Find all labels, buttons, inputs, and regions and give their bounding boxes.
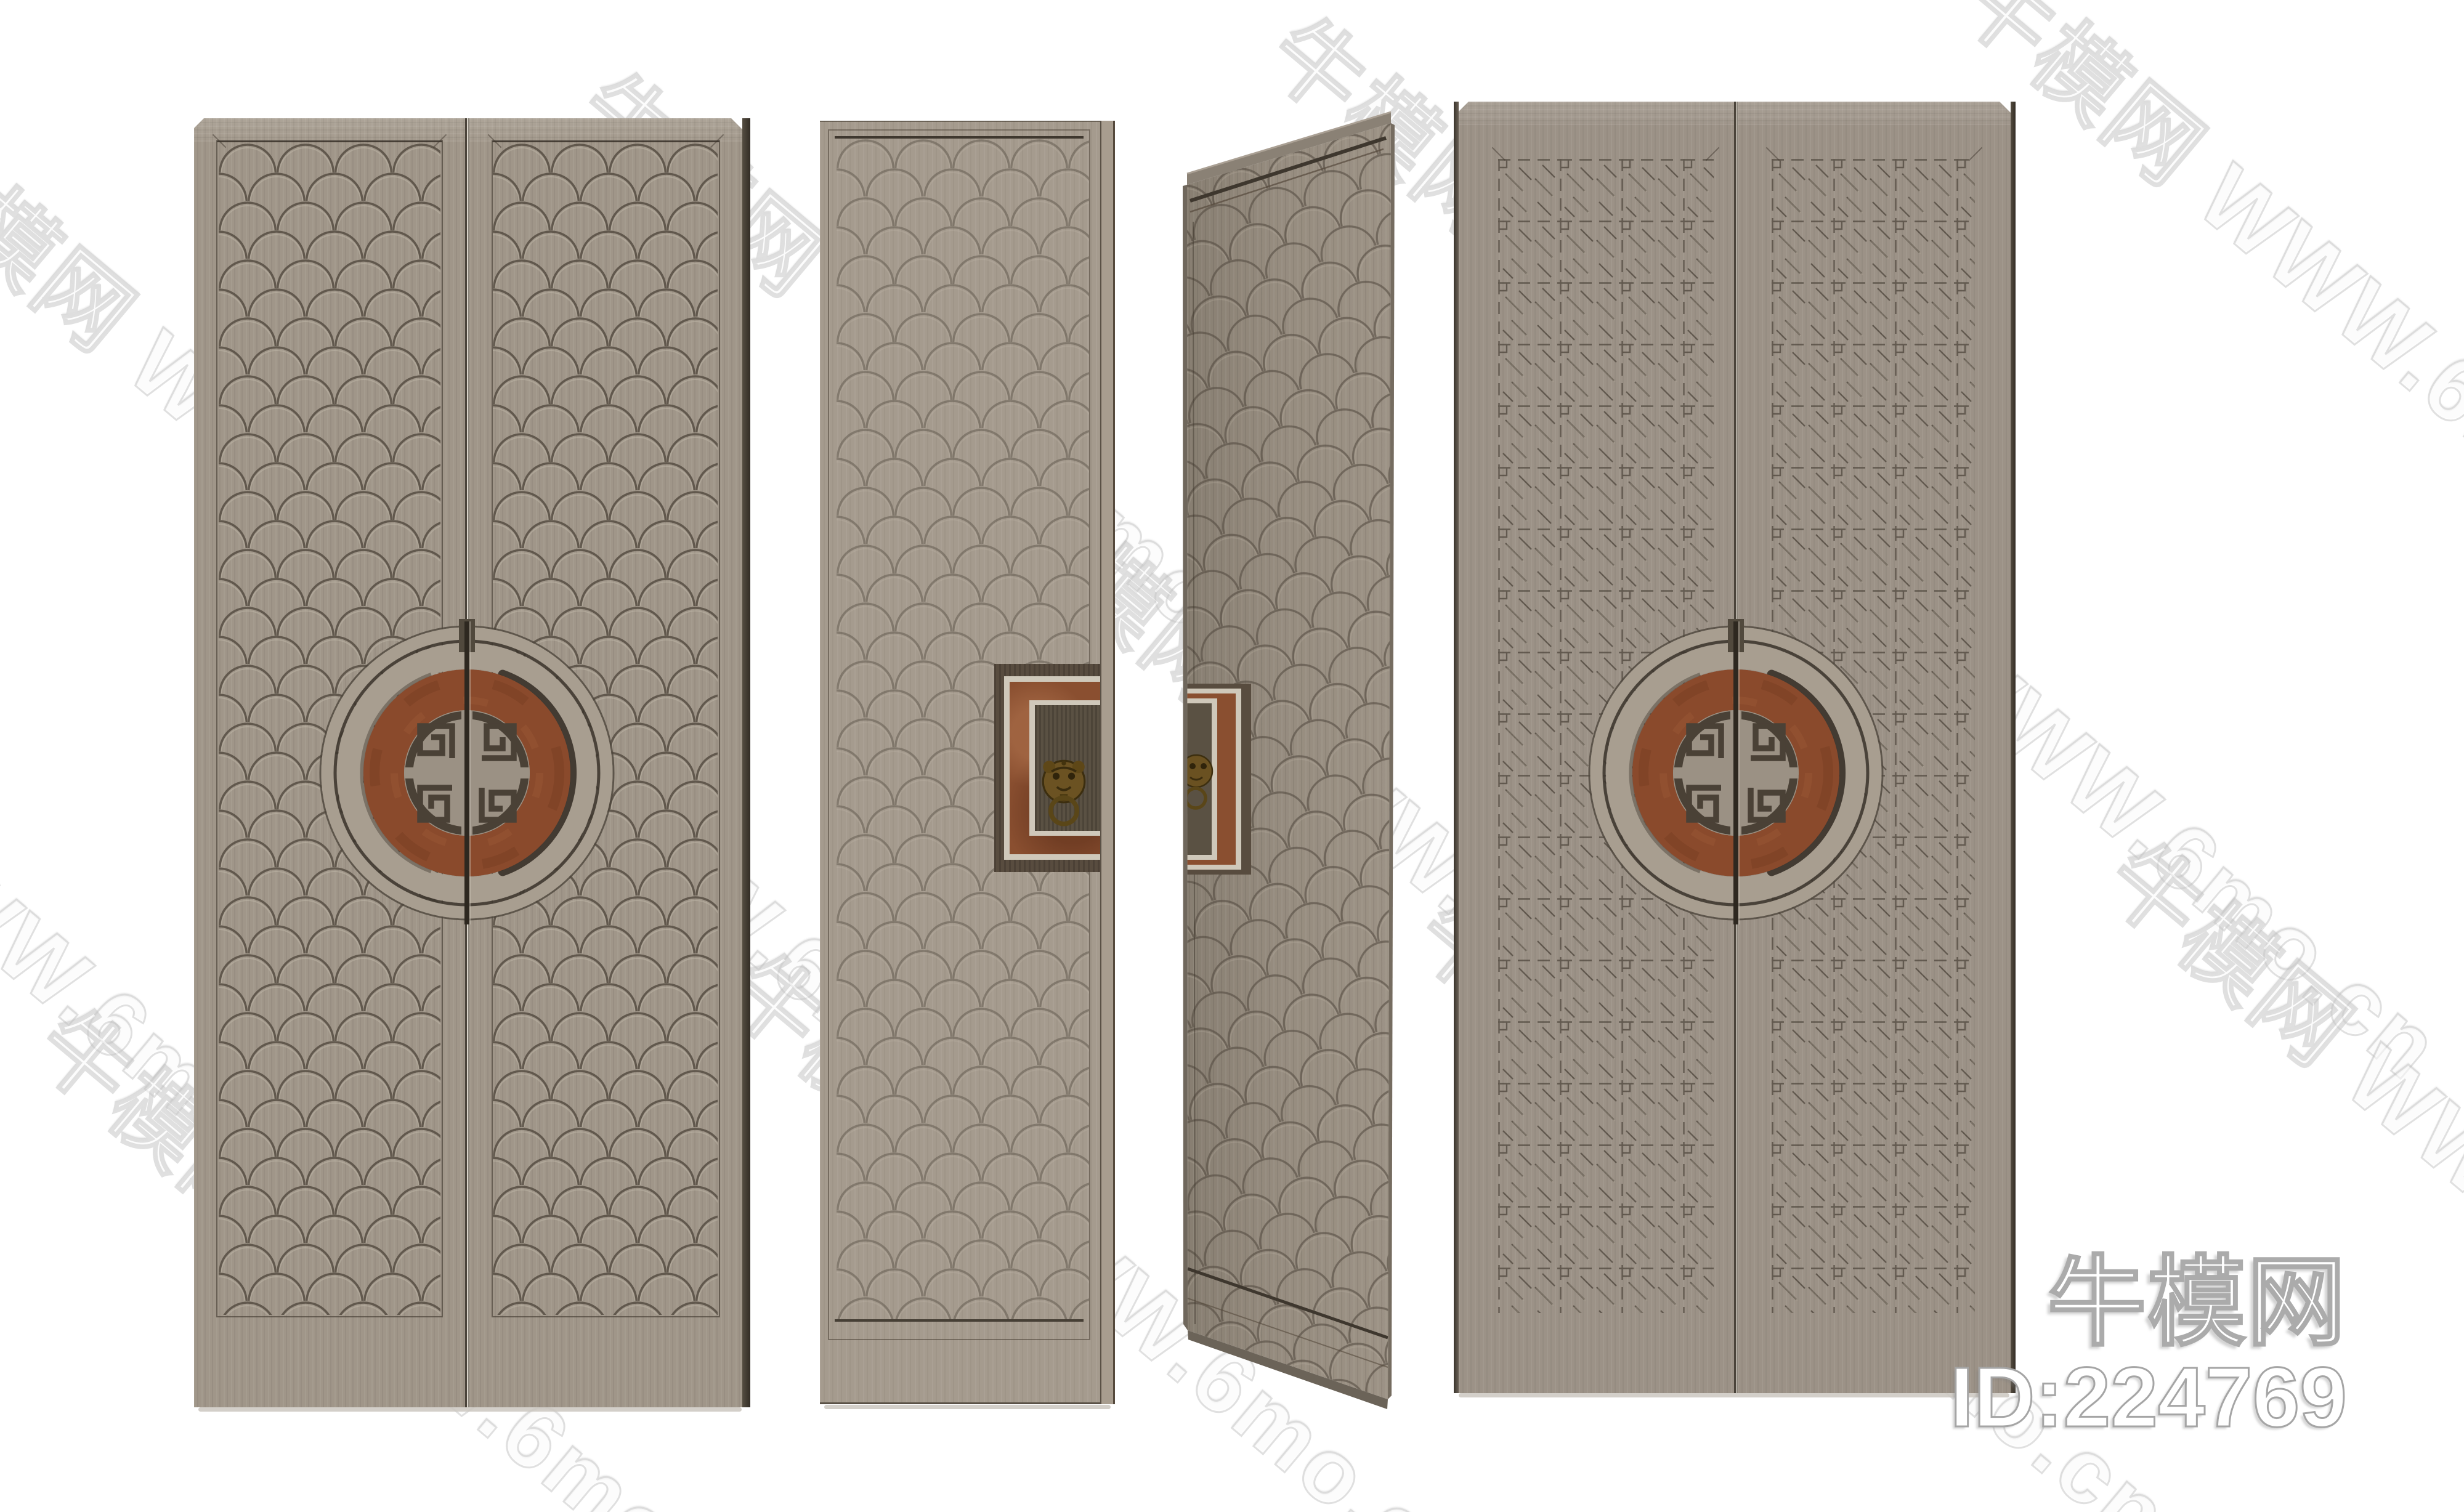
wardrobe-right-lattice-doors [1454, 102, 2016, 1393]
floor-shadow [198, 1407, 742, 1412]
door-top-rail [469, 118, 742, 142]
lion-knocker-plaque [1170, 684, 1251, 875]
cabinet-side-edge-left [1454, 102, 1459, 1393]
site-logo-text: 牛模网 [2048, 1223, 2347, 1365]
lion-head-knocker-icon [1033, 742, 1095, 828]
model-preview-image: 牛模网 WWW.6mo.cn牛模网 WWW.6mo.cn牛模网 WWW.6mo.… [0, 0, 2464, 1512]
wardrobe-left-fish-scale-doors [194, 118, 750, 1407]
cabinet-side-edge-right [2011, 102, 2016, 1393]
door-top-rail [1738, 102, 2011, 125]
door-slab-face [820, 121, 1100, 1404]
single-door-front-view [820, 121, 1117, 1404]
longevity-medallion-emblem [313, 619, 621, 927]
door-top-rail [194, 118, 465, 142]
longevity-medallion-emblem [1582, 619, 1890, 927]
single-door-angled-view [1158, 99, 1404, 1423]
watermark-text: 牛模网 WWW.6mo.cn [0, 1029, 135, 1512]
floor-shadow [824, 1405, 1111, 1409]
door-hinge-edge [1183, 185, 1188, 1330]
door-edge-thickness [1100, 121, 1115, 1404]
cabinet-side-edge [742, 118, 750, 1407]
floor-shadow [1459, 1393, 2009, 1397]
door-top-rail [1459, 102, 1734, 125]
lion-knocker-plaque [994, 664, 1100, 872]
field-bottom-groove [835, 1319, 1084, 1322]
model-id-text: ID:224769 [1950, 1349, 2347, 1447]
